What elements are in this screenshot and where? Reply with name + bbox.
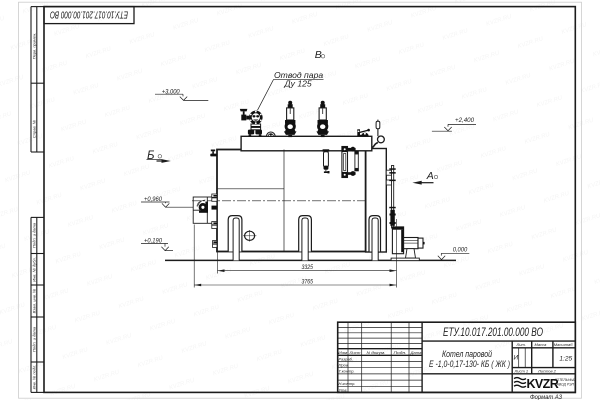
svg-text:Подп.: Подп. — [394, 350, 407, 355]
svg-text:+0,190: +0,190 — [144, 239, 163, 245]
svg-text:1:25: 1:25 — [559, 355, 572, 362]
svg-text:КОТЕЛЬНЫЙ: КОТЕЛЬНЫЙ — [555, 378, 577, 382]
svg-text:Утв.: Утв. — [339, 387, 348, 392]
svg-text:Е -1,0-0,17-130- КБ ( ЖК ): Е -1,0-0,17-130- КБ ( ЖК ) — [429, 359, 510, 369]
svg-text:Справ. №: Справ. № — [32, 119, 37, 138]
svg-text:Формат А3: Формат А3 — [530, 394, 563, 400]
svg-text:ЕТУ.10.017.201.00.000 ВО: ЕТУ.10.017.201.00.000 ВО — [443, 327, 543, 339]
svg-text:Котел паровой: Котел паровой — [442, 348, 493, 359]
svg-text:Перв. примен.: Перв. примен. — [32, 33, 37, 60]
svg-text:Инв. № подл.: Инв. № подл. — [32, 365, 37, 390]
svg-text:Взам. инв. №: Взам. инв. № — [32, 288, 37, 313]
svg-text:3765: 3765 — [302, 279, 314, 286]
svg-text:ЗАВОД РЭП: ЗАВОД РЭП — [555, 383, 575, 387]
svg-text:Ду 125: Ду 125 — [284, 78, 312, 88]
svg-text:Листов 2: Листов 2 — [537, 369, 557, 374]
svg-text:А: А — [426, 170, 434, 182]
svg-text:Инв. № дубл.: Инв. № дубл. — [32, 257, 37, 282]
svg-text:+3,000: +3,000 — [162, 89, 181, 95]
svg-text:Подп. и дата: Подп. и дата — [32, 222, 37, 248]
svg-text:+2,400: +2,400 — [455, 118, 475, 124]
svg-text:Лист 1: Лист 1 — [514, 369, 529, 374]
svg-text:Б: Б — [147, 150, 155, 162]
svg-text:Лист: Лист — [348, 350, 361, 355]
svg-text:0,000: 0,000 — [453, 247, 468, 253]
svg-text:Пров.: Пров. — [339, 363, 350, 368]
svg-text:Н.контр.: Н.контр. — [339, 381, 356, 386]
svg-text:И: И — [514, 354, 519, 361]
svg-text:ЕТУ.10.017.201.00.000 ВО: ЕТУ.10.017.201.00.000 ВО — [50, 9, 128, 20]
svg-text:Подп. и дата: Подп. и дата — [32, 326, 37, 352]
svg-text:Разраб.: Разраб. — [339, 356, 353, 361]
svg-text:Т.контр.: Т.контр. — [339, 369, 355, 374]
svg-text:+0,960: +0,960 — [144, 197, 163, 203]
svg-text:Дата: Дата — [409, 350, 422, 355]
svg-text:Масштаб: Масштаб — [554, 342, 573, 347]
svg-text:Лит.: Лит. — [516, 342, 526, 347]
svg-text:3325: 3325 — [302, 264, 314, 271]
svg-text:N докум.: N докум. — [367, 350, 386, 355]
svg-text:Масса: Масса — [535, 342, 548, 347]
svg-text:В: В — [315, 49, 322, 61]
svg-text:Изм: Изм — [338, 350, 347, 355]
